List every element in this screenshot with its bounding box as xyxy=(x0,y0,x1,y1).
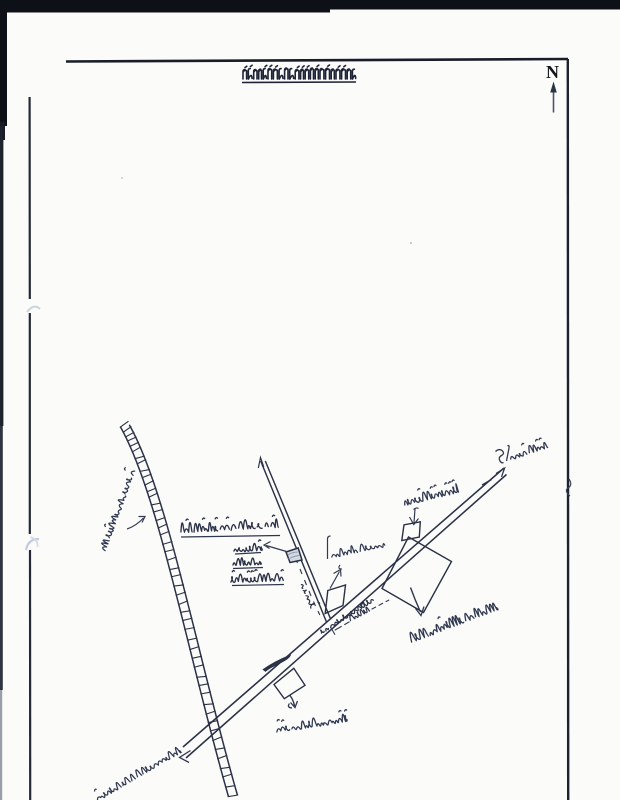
svg-text:N: N xyxy=(546,62,559,82)
